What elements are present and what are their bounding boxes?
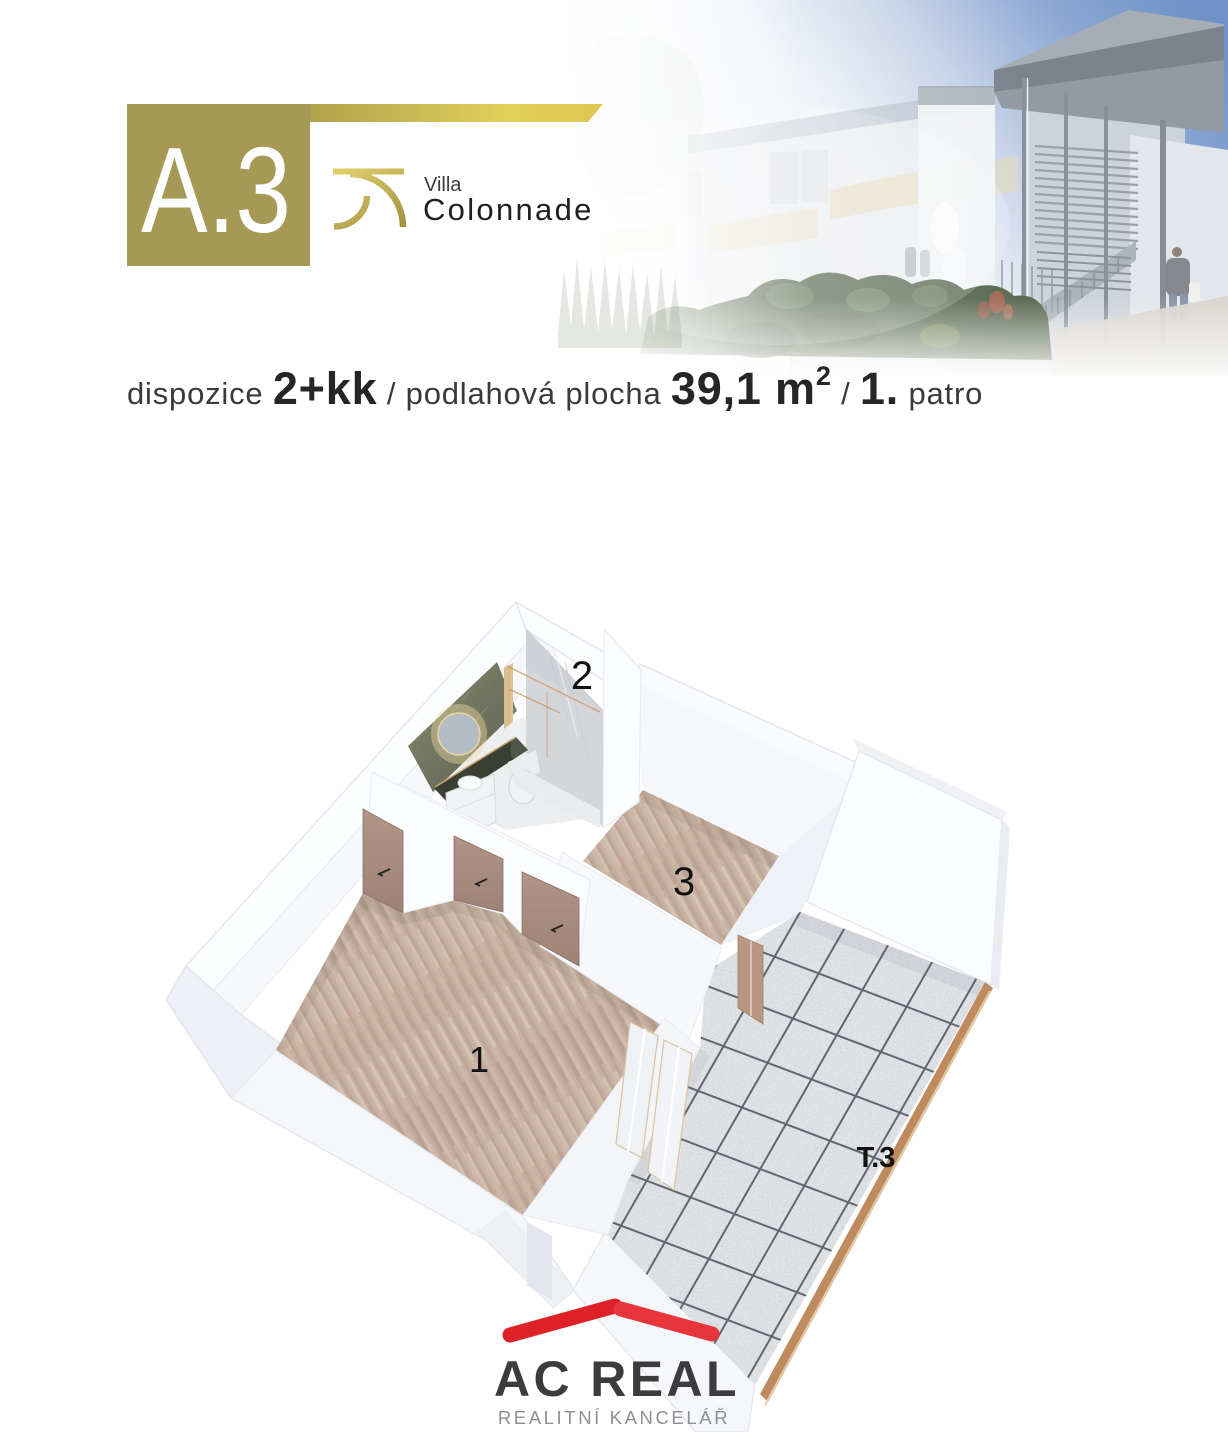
svg-text:A.3: A.3 <box>141 122 291 258</box>
svg-text:T.3: T.3 <box>857 1142 896 1174</box>
svg-text:2: 2 <box>571 654 593 698</box>
svg-text:1: 1 <box>469 1039 489 1080</box>
svg-text:Colonnade: Colonnade <box>423 192 594 227</box>
svg-text:3: 3 <box>673 860 695 904</box>
svg-text:AC REAL: AC REAL <box>494 1351 740 1407</box>
svg-text:REALITNÍ KANCELÁŘ: REALITNÍ KANCELÁŘ <box>498 1407 730 1428</box>
